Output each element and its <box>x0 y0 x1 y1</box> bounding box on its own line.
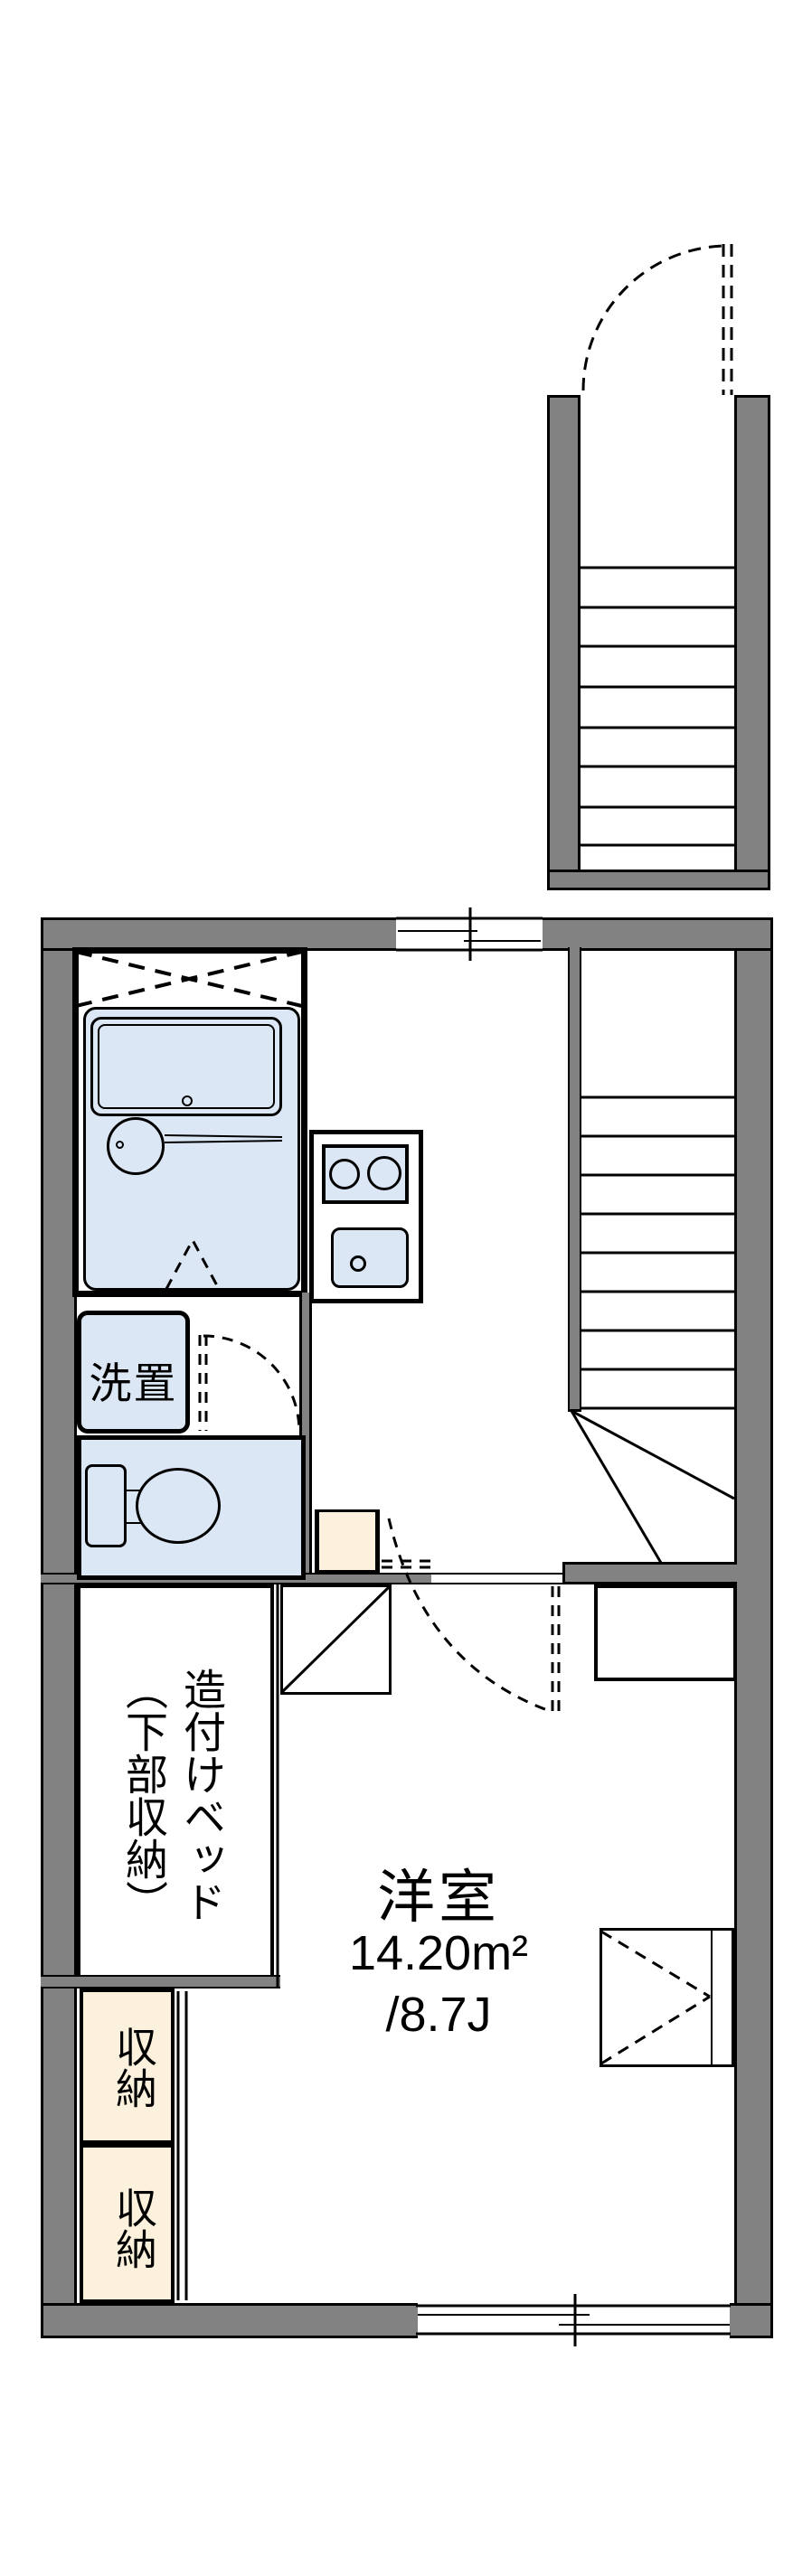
stove-burner-right <box>367 1156 401 1190</box>
window-bottom <box>418 2300 730 2341</box>
hall-step-square <box>280 1584 392 1695</box>
room-area-tatami: /8.7J <box>298 1987 579 2043</box>
kitchen-sink-drain <box>350 1255 366 1272</box>
unit-wall-left <box>41 917 77 2338</box>
stair-side-wall <box>568 947 581 1412</box>
toilet-bowl <box>136 1468 221 1544</box>
room-label: 洋室 <box>326 1851 552 1934</box>
room-area-m2: 14.20m² <box>298 1925 579 1981</box>
winder-line-1 <box>571 1411 734 1499</box>
ext-stair-right-wall <box>734 395 770 890</box>
doorway-threshold <box>431 1573 562 1584</box>
casement-window-unit <box>600 1928 734 2067</box>
under-stair-cabinet <box>594 1584 737 1681</box>
toilet-tank <box>85 1464 127 1547</box>
water-heater-box <box>315 1509 380 1573</box>
wall-bed-bottom <box>41 1975 280 1988</box>
ext-stair-left-wall <box>547 395 581 890</box>
unit-wall-right <box>734 917 773 2338</box>
floor-plan: 洗置 造付けベッド （下部収納） 収納 収納 洋室 14.20m² /8.7J <box>0 0 812 2576</box>
room-door <box>382 1518 559 1715</box>
ext-stair-bottom-wall <box>547 870 770 890</box>
entrance-door <box>583 244 732 395</box>
washer-label: 洗置 <box>77 1349 190 1411</box>
bath-faucet-dot <box>116 1141 124 1149</box>
bathtub-drain <box>182 1095 193 1106</box>
winder-line-2 <box>571 1411 661 1563</box>
wc-door <box>200 1335 299 1432</box>
kitchen-sink <box>331 1227 409 1288</box>
wall-stair-bottom <box>562 1562 737 1584</box>
closet-lower-label: 収納 <box>104 2169 164 2287</box>
closet-upper-label: 収納 <box>104 2008 164 2126</box>
stove-burner-left <box>329 1159 360 1189</box>
bed-label: 造付けベッド （下部収納） <box>112 1614 230 1976</box>
window-top <box>396 915 543 954</box>
